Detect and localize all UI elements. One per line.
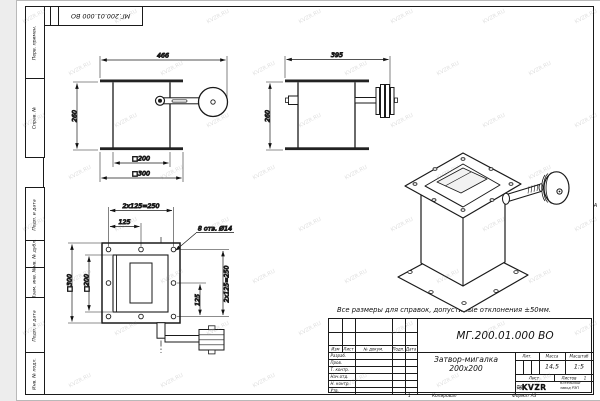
plan-counterweight-bolt-bottom bbox=[209, 350, 216, 354]
side-bottom-flange bbox=[285, 147, 369, 150]
iso-disc-hole-center bbox=[559, 191, 561, 193]
tb-grid-line bbox=[392, 319, 393, 394]
plan-shaft-stub bbox=[157, 323, 165, 339]
dim-side-width: 395 bbox=[331, 52, 343, 59]
side-top-flange bbox=[285, 80, 369, 83]
zone-marker: А bbox=[593, 203, 598, 209]
tb-col-data: Дата bbox=[406, 346, 416, 351]
tb-grid-line bbox=[355, 319, 356, 394]
tb-row-nkontr: Н. контр. bbox=[331, 382, 350, 386]
tb-grid-line bbox=[523, 360, 524, 374]
tb-part-name: Затвор-мигалка 200х200 bbox=[417, 352, 515, 394]
tb-doc-number: МГ.200.01.000 ВО bbox=[417, 319, 593, 352]
side-shaft bbox=[355, 98, 376, 104]
dim-plan-right-total: 2x125=250 bbox=[224, 265, 231, 302]
tb-grid-line bbox=[539, 352, 540, 374]
tb-listov-label: Листов bbox=[562, 375, 577, 380]
view-front: 466 260 □200 □300 bbox=[72, 53, 228, 183]
iso-shaft-hub bbox=[503, 193, 510, 204]
front-shaft-center bbox=[158, 99, 162, 103]
tb-scale-value: 1:5 bbox=[574, 364, 584, 371]
tb-row-utv: Утв. bbox=[331, 389, 339, 393]
tb-mass-label: Масса bbox=[546, 354, 559, 359]
front-bottom-flange bbox=[100, 147, 183, 150]
dim-front-width: 466 bbox=[157, 53, 169, 60]
tb-grid-line bbox=[329, 387, 417, 388]
company-name: Котельный завод РЭП bbox=[560, 381, 592, 394]
dim-front-outer: □300 bbox=[132, 171, 150, 178]
tb-grid-line bbox=[515, 360, 593, 361]
dim-front-inner: □200 bbox=[132, 156, 150, 163]
title-block: Изм Лист № докум. Подп. Дата Разраб. Про… bbox=[328, 318, 592, 393]
front-top-flange bbox=[100, 80, 183, 83]
dimension-lines bbox=[270, 60, 389, 149]
dim-plan-right-half: 125 bbox=[195, 294, 202, 306]
iso-lever-end bbox=[539, 184, 543, 192]
tb-col-izm: Изм bbox=[331, 346, 339, 351]
drawing-sheet-page: { "sheet": { "watermark": "KVZR.RU", "no… bbox=[0, 0, 600, 400]
plan-counterweight-bolt-top bbox=[209, 326, 216, 330]
tb-mass-value: 14,5 bbox=[545, 364, 559, 371]
tb-row-tkontr: Т. контр. bbox=[331, 368, 350, 372]
front-lever-slot bbox=[172, 100, 187, 102]
tb-row-nachotd: Нач.отд. bbox=[331, 375, 349, 379]
tb-row-prov: Пров. bbox=[331, 361, 343, 365]
front-counterweight-bolt bbox=[211, 100, 215, 104]
tb-listov-value: 1 bbox=[584, 375, 587, 380]
side-left-hub-tip bbox=[286, 98, 289, 103]
logo-text: KVZR bbox=[522, 383, 547, 392]
side-counterweight-plates bbox=[376, 85, 398, 118]
tb-row-razrab: Разраб. bbox=[331, 354, 347, 358]
tb-grid-line bbox=[531, 360, 532, 374]
dim-plan-top-half: 125 bbox=[118, 219, 130, 226]
plan-lever-arm bbox=[165, 336, 202, 343]
tb-grid-line bbox=[554, 374, 555, 381]
tb-grid-line bbox=[405, 319, 406, 394]
tb-scale-label: Масштаб bbox=[569, 354, 588, 359]
dimension-lines bbox=[77, 60, 226, 178]
view-plan: 2x125=250 125 8 отв. Ø14 □300 □200 2x125… bbox=[67, 203, 235, 354]
dim-side-height: 260 bbox=[265, 110, 272, 122]
tb-col-podp: Подп. bbox=[392, 346, 404, 351]
tb-list-label: Лист bbox=[529, 375, 539, 380]
dim-plan-left-outer: □300 bbox=[67, 274, 74, 292]
tb-lit-label: Лит. bbox=[522, 354, 531, 359]
tb-grid-line bbox=[329, 332, 417, 333]
side-left-hub bbox=[289, 96, 299, 105]
tb-grid-line bbox=[565, 352, 566, 374]
dim-plan-left-inner: □200 bbox=[84, 274, 91, 292]
tb-grid-line bbox=[329, 359, 417, 360]
tb-col-list: Лист bbox=[343, 346, 353, 351]
tb-col-doc: № докум. bbox=[364, 346, 384, 351]
view-side: 395 260 bbox=[265, 52, 398, 150]
dim-plan-holes-callout: 8 отв. Ø14 bbox=[198, 225, 232, 233]
dim-plan-top-total: 2x125=250 bbox=[122, 203, 159, 210]
company-logo: ≋ KVZR bbox=[516, 382, 560, 393]
dim-front-height: 260 bbox=[72, 110, 79, 122]
view-isometric bbox=[398, 153, 569, 312]
